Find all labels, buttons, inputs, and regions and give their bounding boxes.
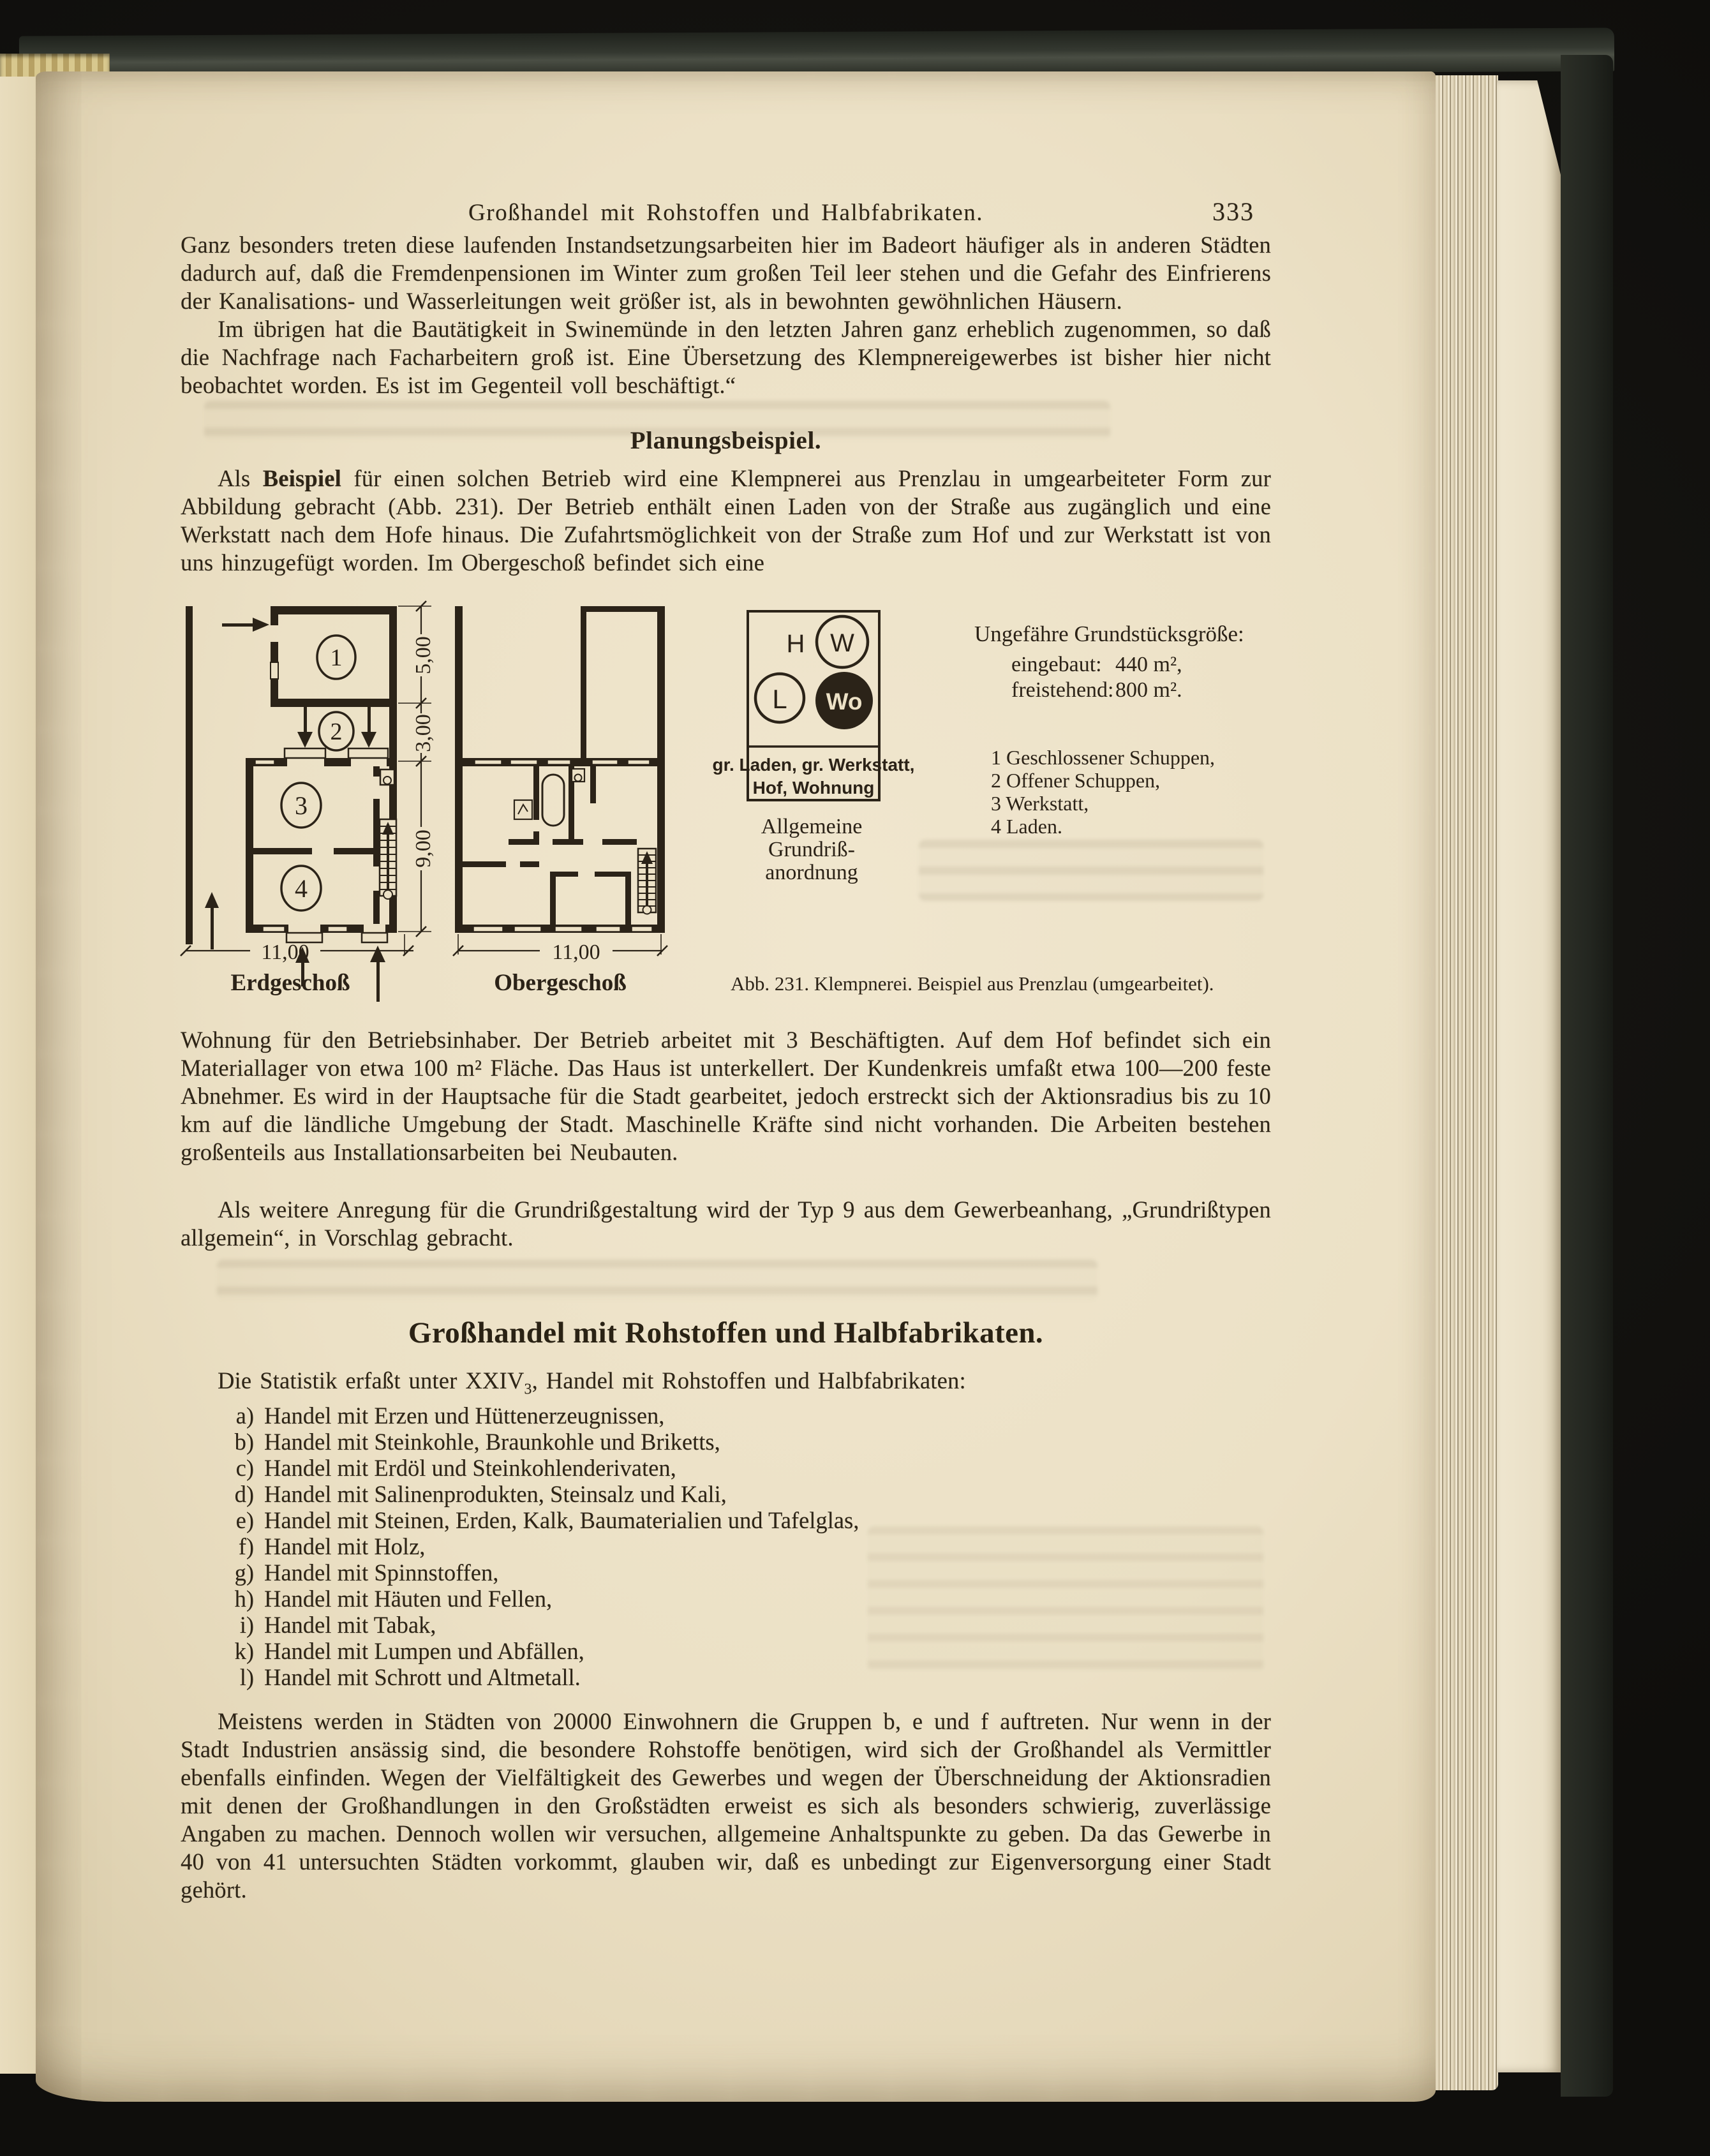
- schematic-diagram: H W L Wo gr. Laden, gr. Werkstatt, Hof, …: [713, 611, 915, 884]
- paragraph-2: Im übrigen hat die Bautätigkeit in Swine…: [181, 315, 1271, 399]
- erdgeschoss-label: Erdgeschoß: [230, 970, 350, 996]
- paragraph-3-bold: Beispiel: [263, 465, 341, 491]
- list-item-label: h): [221, 1586, 264, 1612]
- paragraph-3-post: für einen solchen Betrieb wird eine Klem…: [181, 465, 1271, 576]
- list-item-text: Handel mit Salinenprodukten, Steinsalz u…: [264, 1481, 727, 1507]
- list-item: a)Handel mit Erzen und Hüttenerzeugnisse…: [221, 1402, 1274, 1429]
- list-item: c)Handel mit Erdöl und Steinkohlenderiva…: [221, 1455, 1274, 1481]
- schematic-caption-line2: Grundriß-: [768, 838, 855, 861]
- list-item: d)Handel mit Salinenprodukten, Steinsalz…: [221, 1481, 1274, 1507]
- section-intro-pre: Die Statistik erfaßt unter XXIV: [218, 1367, 524, 1394]
- site-size-built-label: eingebaut:: [1011, 653, 1102, 676]
- room-4-number: 4: [295, 874, 308, 903]
- list-item-label: l): [221, 1664, 264, 1690]
- site-size-free-label: freistehend:: [1011, 678, 1114, 702]
- paragraph-1: Ganz besonders treten diese laufenden In…: [181, 231, 1271, 315]
- photo-background: { "header": { "running_head": "Großhande…: [0, 0, 1710, 2156]
- planungsbeispiel-heading: Planungsbeispiel.: [181, 426, 1271, 455]
- site-size-built-value: 440 m²,: [1115, 653, 1182, 676]
- paragraph-3: Als Beispiel für einen solchen Betrieb w…: [181, 465, 1271, 577]
- section-intro-post: , Handel mit Rohstoffen und Halbfabrikat…: [532, 1367, 966, 1394]
- schematic-caption-line3: anordnung: [765, 861, 858, 884]
- list-item-label: b): [221, 1429, 264, 1455]
- legend-item-1: 1 Geschlossener Schuppen,: [991, 746, 1215, 769]
- dim-9-label: 9,00: [412, 829, 435, 868]
- room-2-number: 2: [331, 718, 343, 745]
- page-stack-edge: [1431, 75, 1498, 2090]
- list-item-text: Handel mit Lumpen und Abfällen,: [264, 1638, 584, 1664]
- trade-list: a)Handel mit Erzen und Hüttenerzeugnisse…: [221, 1402, 1274, 1690]
- list-item-text: Handel mit Steinen, Erden, Kalk, Baumate…: [264, 1507, 859, 1533]
- dim-11-left-label: 11,00: [261, 940, 309, 964]
- staircase-icon: [638, 849, 656, 914]
- staircase-icon: [380, 819, 396, 899]
- schematic-box-line2: Hof, Wohnung: [753, 778, 875, 798]
- site-size-block: Ungefähre Grundstücksgröße: eingebaut: 4…: [974, 621, 1244, 702]
- paragraph-5: Als weitere Anregung für die Grundrißges…: [181, 1196, 1271, 1252]
- list-item-label: c): [221, 1455, 264, 1481]
- legend-item-4: 4 Laden.: [991, 815, 1062, 838]
- closing-paragraph: Meistens werden in Städten von 20000 Ein…: [181, 1707, 1271, 1904]
- list-item-label: k): [221, 1638, 264, 1664]
- site-size-title: Ungefähre Grundstücksgröße:: [974, 621, 1244, 646]
- figure-caption: Abb. 231. Klempnerei. Beispiel aus Prenz…: [731, 972, 1214, 995]
- schematic-wo-label: Wo: [826, 688, 863, 715]
- figure-abb-231: 1 2 3 4 5,00 3,00 9,00 11,00: [172, 587, 1282, 1002]
- obergeschoss-plan: 11,00 Obergeschoß: [453, 606, 667, 996]
- list-item: g)Handel mit Spinnstoffen,: [221, 1559, 1274, 1586]
- bleedthrough-smudge: [217, 1260, 1097, 1300]
- schematic-w-label: W: [830, 629, 854, 657]
- legend-item-2: 2 Offener Schuppen,: [991, 769, 1160, 792]
- list-item-text: Handel mit Tabak,: [264, 1612, 436, 1638]
- room-1-number: 1: [331, 644, 343, 671]
- dim-11-right-label: 11,00: [552, 940, 600, 964]
- schematic-h-label: H: [787, 630, 805, 658]
- room-3-number: 3: [295, 791, 308, 820]
- list-item-text: Handel mit Erdöl und Steinkohlenderivate…: [264, 1455, 676, 1481]
- obergeschoss-label: Obergeschoß: [494, 970, 627, 996]
- section-heading: Großhandel mit Rohstoffen und Halbfabrik…: [181, 1316, 1271, 1350]
- running-head: Großhandel mit Rohstoffen und Halbfabrik…: [181, 199, 1271, 227]
- schematic-caption-line1: Allgemeine: [761, 815, 863, 838]
- schematic-box-line1: gr. Laden, gr. Werkstatt,: [713, 755, 915, 775]
- list-item: k)Handel mit Lumpen und Abfällen,: [221, 1638, 1274, 1664]
- list-item-label: f): [221, 1533, 264, 1559]
- schematic-l-label: L: [772, 684, 787, 714]
- book-cover-right: [1561, 55, 1613, 2097]
- list-item-label: i): [221, 1612, 264, 1638]
- wc-fixture-icon: [572, 769, 584, 782]
- list-item: l)Handel mit Schrott und Altmetall.: [221, 1664, 1274, 1690]
- list-item-text: Handel mit Holz,: [264, 1533, 425, 1559]
- site-size-free-value: 800 m².: [1115, 678, 1182, 702]
- dim-3-label: 3,00: [412, 714, 435, 752]
- dim-5-label: 5,00: [412, 636, 435, 674]
- list-item: i)Handel mit Tabak,: [221, 1612, 1274, 1638]
- list-item: e)Handel mit Steinen, Erden, Kalk, Bauma…: [221, 1507, 1274, 1533]
- list-item-text: Handel mit Steinkohle, Braunkohle und Br…: [264, 1429, 720, 1455]
- section-intro: Die Statistik erfaßt unter XXIV3, Handel…: [181, 1367, 1271, 1403]
- list-item: b)Handel mit Steinkohle, Braunkohle und …: [221, 1429, 1274, 1455]
- list-item: h)Handel mit Häuten und Fellen,: [221, 1586, 1274, 1612]
- section-intro-sub: 3: [524, 1381, 532, 1397]
- sink-icon: [514, 800, 532, 819]
- bathtub-icon: [542, 775, 564, 826]
- page-number: 333: [1180, 197, 1254, 227]
- paragraph-3-pre: Als: [218, 465, 263, 491]
- list-item-label: d): [221, 1481, 264, 1507]
- erdgeschoss-plan: 1 2 3 4 5,00 3,00 9,00 11,00: [181, 601, 435, 1002]
- list-item-label: e): [221, 1507, 264, 1533]
- figure-legend: 1 Geschlossener Schuppen, 2 Offener Schu…: [991, 746, 1215, 838]
- list-item-text: Handel mit Häuten und Fellen,: [264, 1586, 552, 1612]
- list-item-text: Handel mit Spinnstoffen,: [264, 1559, 498, 1586]
- paragraph-4: Wohnung für den Betriebsinhaber. Der Bet…: [181, 1026, 1271, 1166]
- next-page-edge: [1497, 80, 1562, 2072]
- legend-item-3: 3 Werkstatt,: [991, 792, 1089, 815]
- list-item: f)Handel mit Holz,: [221, 1533, 1274, 1559]
- list-item-label: g): [221, 1559, 264, 1586]
- list-item-text: Handel mit Schrott und Altmetall.: [264, 1664, 581, 1690]
- list-item-text: Handel mit Erzen und Hüttenerzeugnissen,: [264, 1402, 664, 1429]
- list-item-label: a): [221, 1402, 264, 1429]
